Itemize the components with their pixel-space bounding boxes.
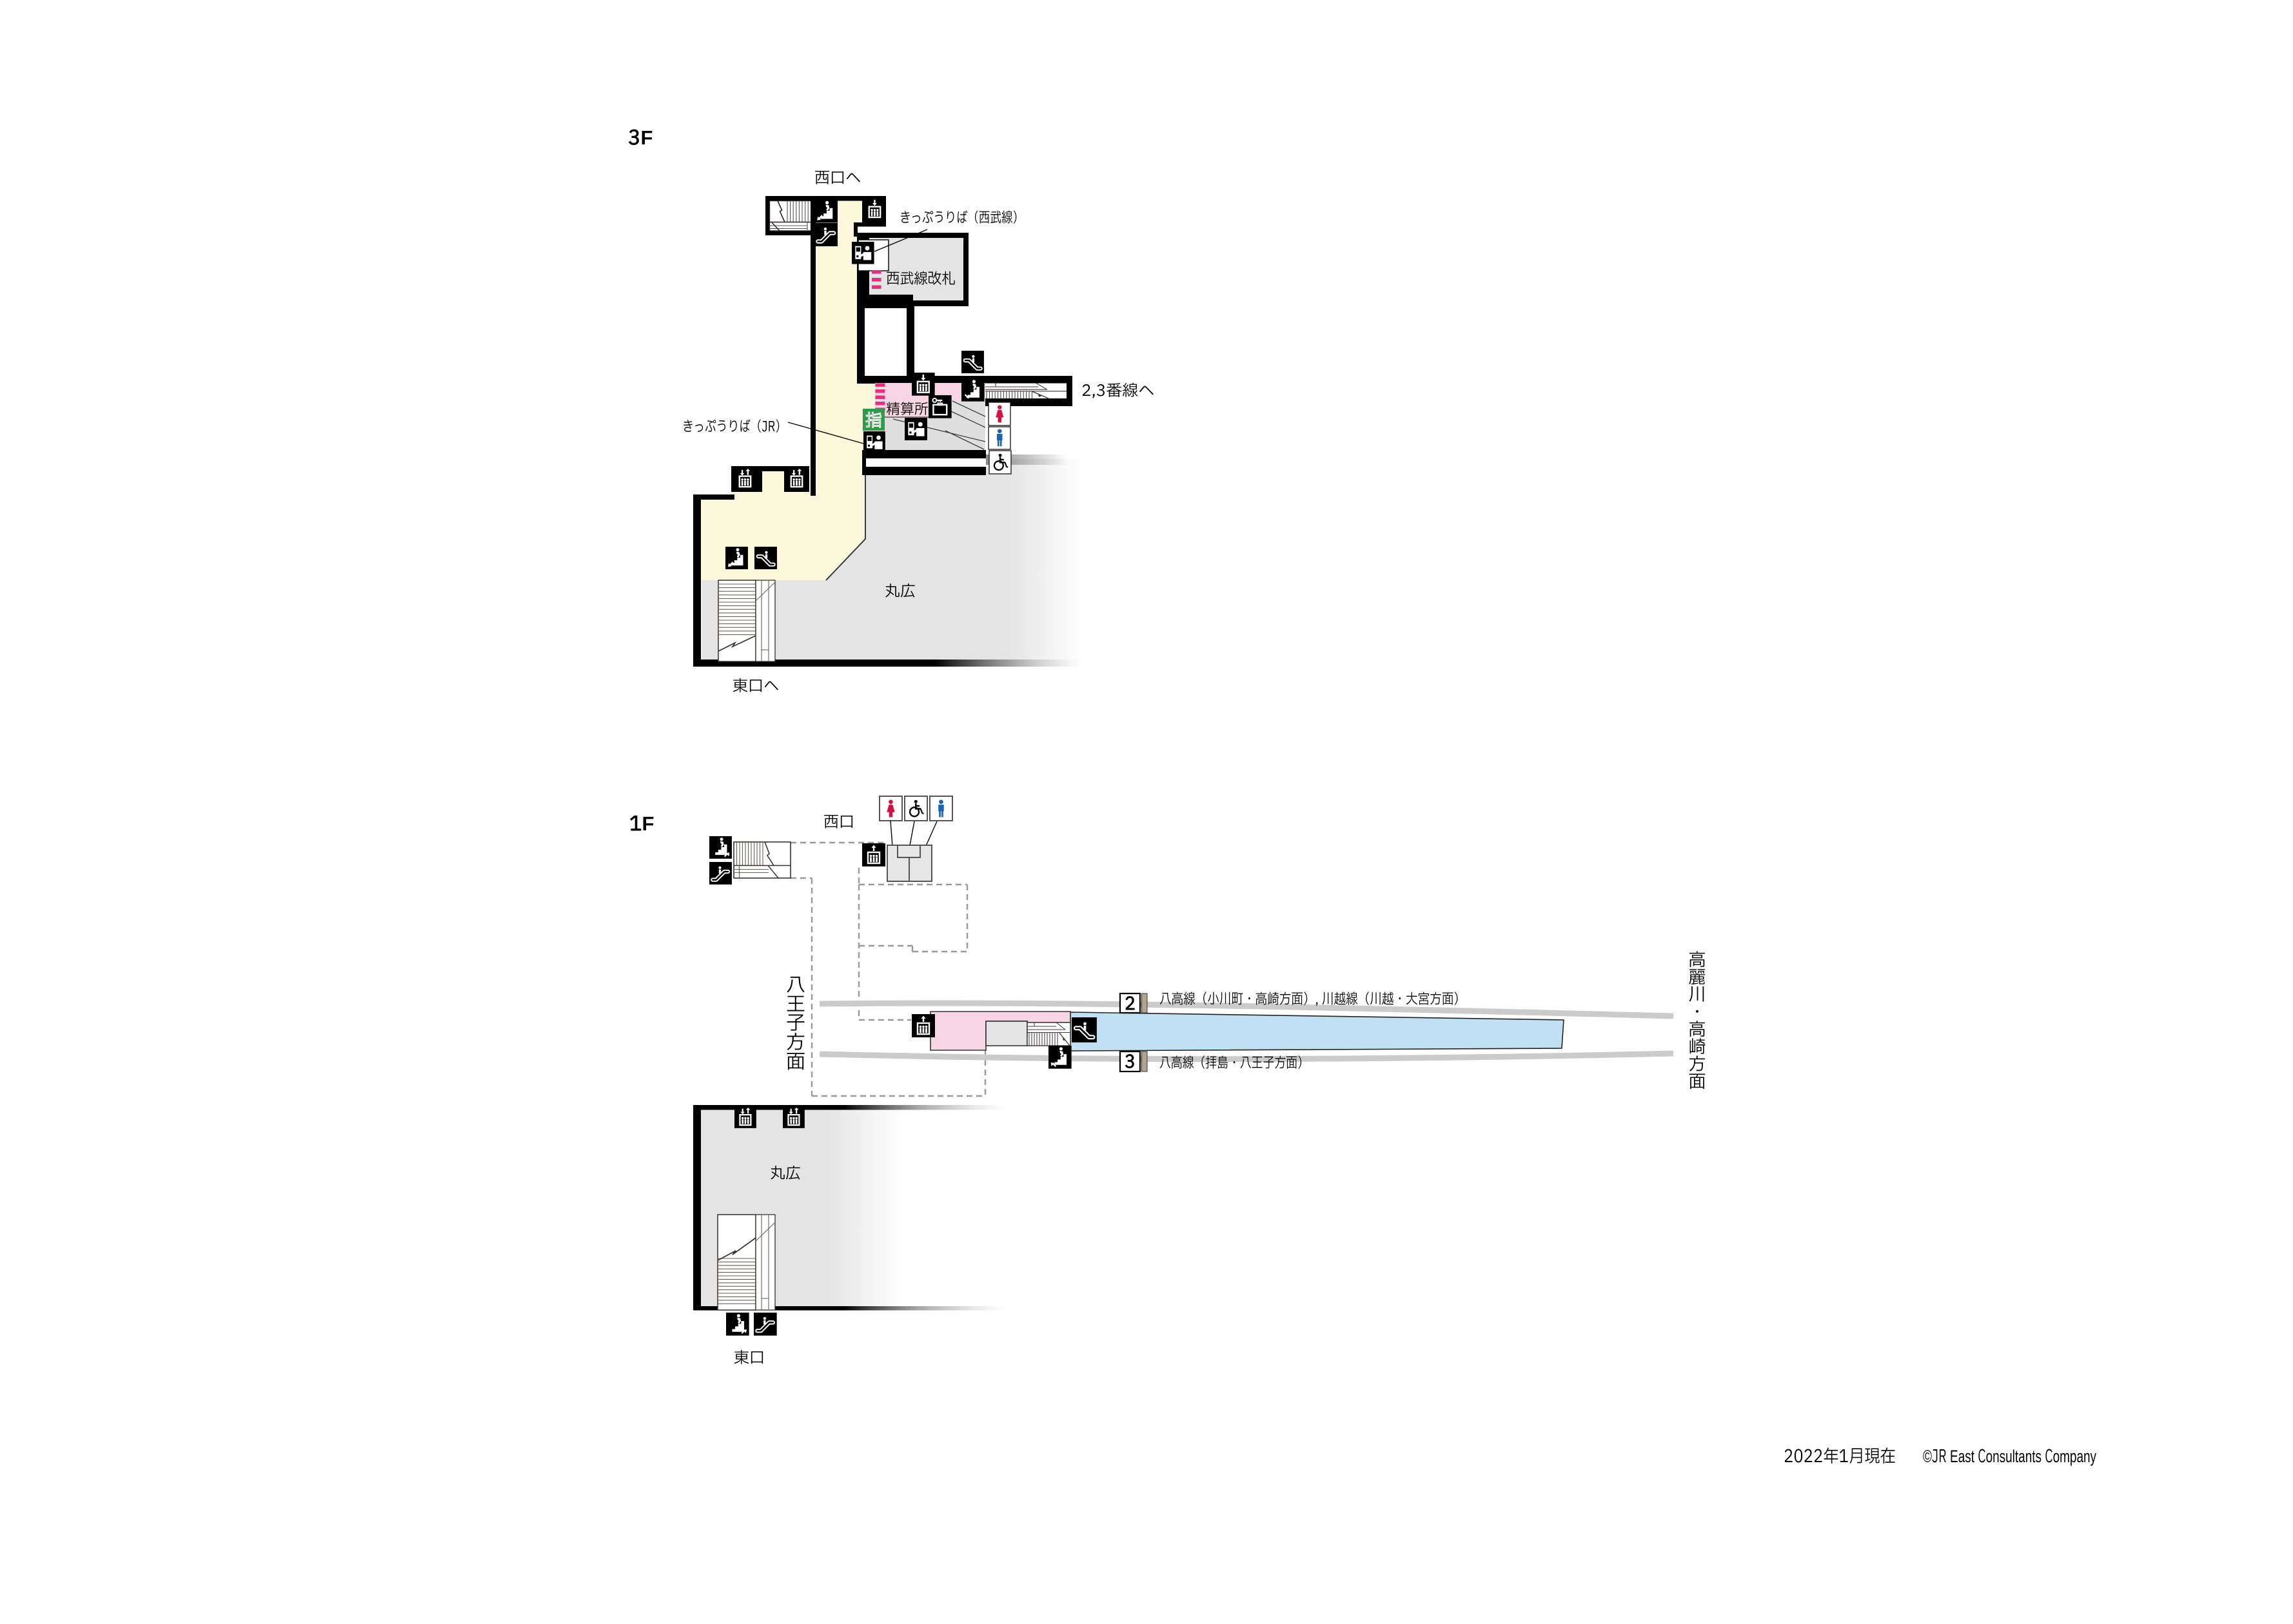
svg-text:3: 3: [1125, 1049, 1136, 1075]
svg-text:2: 2: [1125, 991, 1136, 1017]
svg-text:©JR East Consultants Company: ©JR East Consultants Company: [1923, 1443, 2096, 1470]
svg-text:西口: 西口: [823, 811, 854, 834]
svg-text:1F: 1F: [629, 809, 654, 839]
svg-text:西武線改札: 西武線改札: [886, 269, 956, 291]
svg-text:八高線（拝島・八王子方面）: 八高線（拝島・八王子方面）: [1159, 1053, 1309, 1074]
svg-text:きっぷうりば（JR）: きっぷうりば（JR）: [682, 416, 787, 438]
svg-text:精算所: 精算所: [886, 399, 929, 420]
svg-text:指: 指: [865, 409, 882, 434]
svg-text:3F: 3F: [628, 123, 653, 153]
svg-text:2022年1月現在: 2022年1月現在: [1784, 1443, 1896, 1470]
svg-text:東口: 東口: [734, 1347, 765, 1370]
svg-text:丸広: 丸広: [770, 1162, 801, 1186]
svg-text:きっぷうりば（西武線）: きっぷうりば（西武線）: [900, 208, 1024, 229]
svg-text:面: 面: [786, 1048, 805, 1077]
svg-text:東口へ: 東口へ: [733, 675, 779, 698]
svg-text:八高線（小川町・高崎方面）, 川越線（川越・大宮方面）: 八高線（小川町・高崎方面）, 川越線（川越・大宮方面）: [1159, 989, 1466, 1010]
svg-text:2,3番線へ: 2,3番線へ: [1081, 380, 1154, 403]
svg-text:西口へ: 西口へ: [814, 167, 861, 190]
svg-text:丸広: 丸広: [885, 580, 916, 603]
svg-text:面: 面: [1689, 1069, 1706, 1095]
